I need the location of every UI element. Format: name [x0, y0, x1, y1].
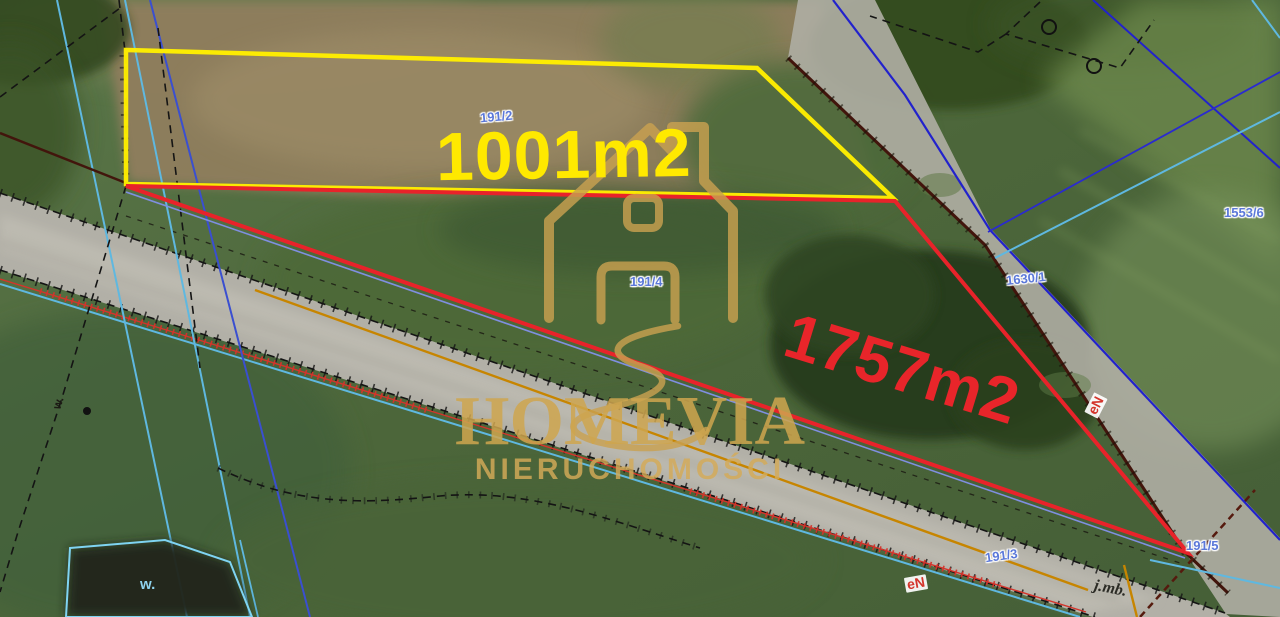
- water-label: w.: [140, 576, 155, 593]
- brand-tagline: NIERUCHOMOŚCI: [450, 453, 810, 487]
- survey-point: [83, 407, 91, 415]
- map-container: 1001m2 1757m2 191/2 191/4 1630/1 1553/6 …: [0, 0, 1280, 617]
- parcel-number-1553-6: 1553/6: [1224, 205, 1264, 220]
- brand-name: HOMEVIA: [450, 382, 810, 462]
- parcel-a-area-label: 1001m2: [435, 114, 692, 196]
- aerial-photo: [0, 0, 1280, 617]
- parcel-number-191-5: 191/5: [1186, 538, 1219, 553]
- parcel-number-191-4: 191/4: [630, 274, 663, 289]
- parcel-number-191-2: 191/2: [479, 108, 513, 126]
